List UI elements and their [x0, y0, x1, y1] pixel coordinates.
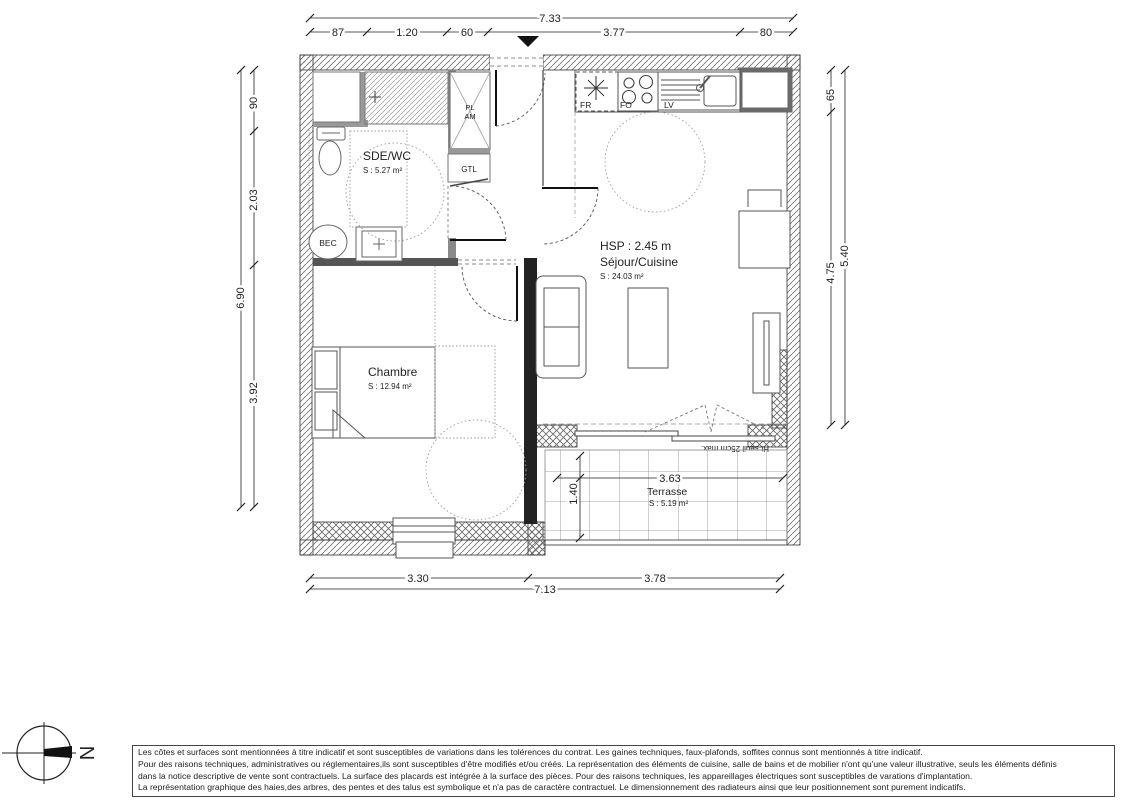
dining-table-icon [739, 190, 790, 268]
svg-text:3.78: 3.78 [644, 573, 665, 585]
svg-text:87: 87 [332, 27, 344, 39]
turning-circle-chambre [426, 420, 526, 520]
svg-text:3.30: 3.30 [407, 573, 428, 585]
svg-text:1.40: 1.40 [568, 483, 580, 504]
svg-text:80: 80 [760, 27, 772, 39]
room-area-sejour: S : 24.03 m² [600, 272, 644, 281]
north-label: N [75, 746, 97, 760]
gtl-box: GTL [448, 148, 490, 186]
compass: N [2, 722, 97, 784]
room-terrasse: 3.63 1.40 Terrasse S : 5.19 m² [543, 450, 787, 545]
room-name-sejour: Séjour/Cuisine [600, 255, 678, 269]
dim-left: 6.90 90 2.03 3.92 [235, 66, 260, 511]
hsp-label: HSP : 2.45 m [600, 239, 671, 253]
svg-text:3.63: 3.63 [659, 473, 680, 485]
svg-text:2.03: 2.03 [248, 189, 260, 210]
svg-text:1.20: 1.20 [396, 27, 417, 39]
closet-label-line2: AM [464, 112, 475, 121]
svg-text:7.33: 7.33 [539, 13, 560, 25]
radiator-icon [753, 313, 780, 393]
disclaimer-line-1: Les côtes et surfaces sont mentionnées à… [138, 747, 1114, 759]
vanity-outline [350, 131, 407, 227]
svg-text:7.13: 7.13 [534, 584, 555, 596]
fridge-label: FR [580, 100, 591, 110]
bed-icon [312, 347, 435, 438]
room-area-sde: S : 5.27 m² [363, 166, 402, 175]
dim-bottom: 3.30 3.78 7.13 [306, 573, 784, 596]
closet-label-line1: PL [465, 103, 474, 112]
svg-text:3.92: 3.92 [248, 382, 260, 403]
dim-right: 65 4.75 5.40 [825, 66, 851, 429]
svg-text:6.90: 6.90 [235, 287, 247, 308]
entrance [490, 36, 545, 126]
room-area-terrasse: S : 5.19 m² [649, 499, 688, 508]
disclaimer-box: Les côtes et surfaces sont mentionnées à… [132, 745, 1115, 797]
shower [365, 72, 448, 124]
entrance-arrow-icon [517, 36, 539, 47]
room-name-sde: SDE/WC [363, 149, 411, 163]
svg-text:4.75: 4.75 [825, 262, 837, 283]
svg-text:60: 60 [461, 27, 473, 39]
washer-slot [313, 72, 360, 122]
coffee-table-icon [628, 288, 668, 368]
dim-top: 7.33 87 1.20 60 3.77 80 [306, 13, 797, 39]
chambre-window [393, 518, 455, 558]
svg-text:65: 65 [825, 89, 837, 101]
svg-text:90: 90 [248, 97, 260, 109]
gtl-label: GTL [461, 165, 477, 174]
room-area-chambre: S : 12.94 m² [368, 382, 412, 391]
north-needle-icon [44, 746, 72, 758]
svg-text:3.77: 3.77 [603, 27, 624, 39]
floor-plan-page: BEC SDE/WC S : 5.27 m² PL AM GTL FR [0, 0, 1143, 800]
chambre-radiator-icon [396, 542, 453, 558]
oven-label: FO [620, 100, 632, 110]
dishwasher-label: LV [664, 100, 674, 110]
disclaimer-line-2: Pour des raisons techniques, administrat… [138, 759, 1114, 771]
floor-plan-drawing: BEC SDE/WC S : 5.27 m² PL AM GTL FR [0, 0, 1143, 800]
turning-circle-kitchen [605, 112, 705, 212]
disclaimer-line-4: La représentation graphique des haies,de… [138, 782, 1114, 794]
bec-label: BEC [319, 238, 336, 248]
closet-pl-am: PL AM [450, 72, 490, 150]
room-name-terrasse: Terrasse [647, 486, 687, 498]
kitchen-counter: FR FO LV [575, 70, 740, 112]
svg-text:5.40: 5.40 [839, 245, 851, 266]
disclaimer-line-3: dans la notice descriptive de vente sont… [138, 771, 1114, 783]
sofa-icon [536, 276, 586, 378]
room-name-chambre: Chambre [368, 365, 418, 379]
washbasin-icon [356, 227, 402, 261]
toilet-icon [317, 127, 345, 175]
room-sejour: HSP : 2.45 m Séjour/Cuisine S : 24.03 m² [536, 112, 790, 393]
room-chambre: Chambre S : 12.94 m² [312, 260, 526, 558]
